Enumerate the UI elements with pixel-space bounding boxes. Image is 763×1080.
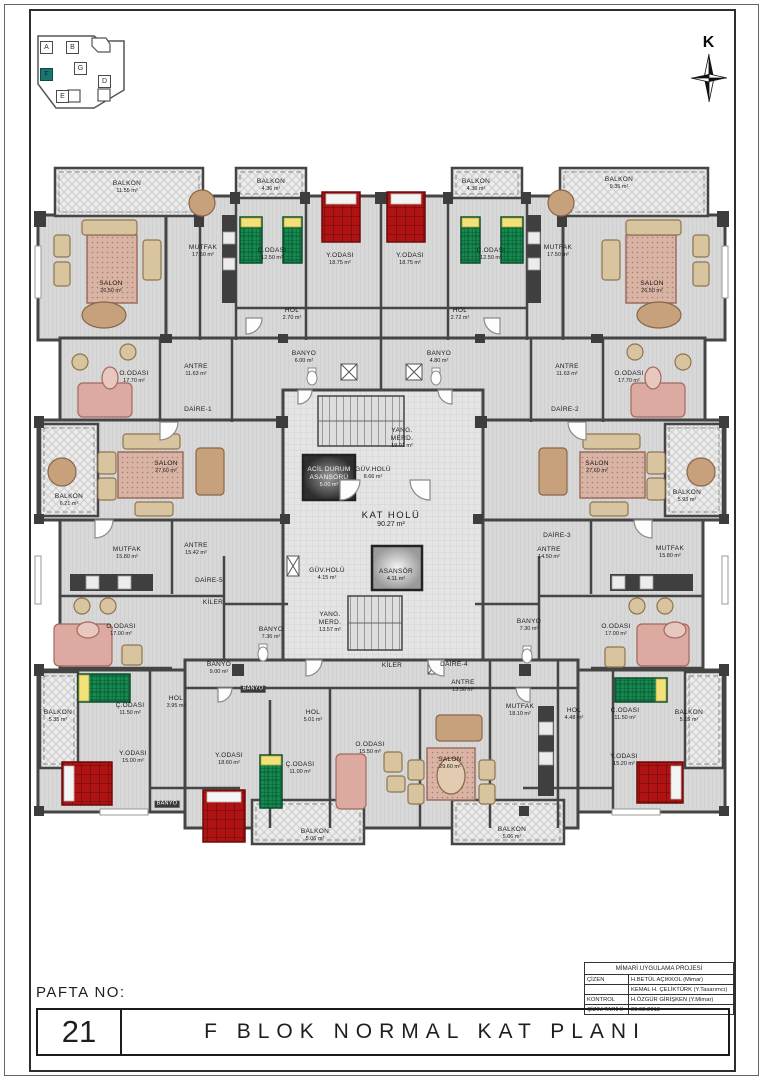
room-label: BANYO6.00 m² — [292, 350, 316, 364]
room-label: ANTRE11.63 m² — [555, 363, 579, 377]
room-label: DAİRE-2 — [551, 406, 579, 414]
room-label: ANTRE14.50 m² — [537, 546, 561, 560]
room-label: BALKON4.36 m² — [462, 178, 490, 192]
room-label: MUTFAK15.80 m² — [656, 545, 684, 559]
titlebar: 21 F BLOK NORMAL KAT PLANI — [36, 1008, 730, 1056]
room-label: BANYO7.36 m² — [259, 626, 283, 640]
room-label: BALKON5.15 m² — [675, 709, 703, 723]
room-label: O.ODASI17.00 m² — [601, 623, 630, 637]
room-label: SALON26.50 m² — [640, 280, 664, 294]
room-label: BALKON5.06 m² — [301, 828, 329, 842]
room-label: DAİRE-3 — [543, 532, 571, 540]
room-label: ACİL DURUM ASANSÖRÜ5.00 m² — [304, 466, 354, 488]
keyplan-block-G: G — [74, 62, 87, 75]
room-label: BALKON4.36 m² — [257, 178, 285, 192]
room-label: YANG. MERD.13.57 m² — [312, 611, 348, 633]
room-label: MUTFAK17.50 m² — [189, 244, 217, 258]
room-label: O.ODASI15.50 m² — [355, 741, 384, 755]
room-label: DAİRE-5 — [195, 577, 223, 585]
sheet-number-label: PAFTA NO: — [36, 984, 126, 1001]
room-label: BANYO — [241, 686, 266, 693]
room-label: MUTFAK15.80 m² — [113, 546, 141, 560]
room-label: HOL2.72 m² — [451, 307, 470, 321]
keyplan-block-A: A — [40, 41, 53, 54]
room-label: DAİRE-1 — [184, 406, 212, 414]
room-label: Ç.ODASI11.50 m² — [611, 707, 640, 721]
room-label: YANG. MERD.19.01 m² — [384, 427, 420, 449]
room-label: ANTRE11.63 m² — [184, 363, 208, 377]
room-label: MUTFAK17.50 m² — [544, 244, 572, 258]
room-label: BALKON6.21 m² — [55, 493, 83, 507]
room-label: ANTRE15.42 m² — [184, 542, 208, 556]
keyplan-block-B: B — [66, 41, 79, 54]
room-label: KİLER — [382, 662, 402, 670]
titleblock-row: KEMAL H. ÇELİKTÜRK (Y.Tasarımcı) — [585, 984, 733, 994]
drawing-sheet: BALKON11.55 m²BALKON4.36 m²BALKON4.36 m²… — [0, 0, 763, 1080]
room-label: MUTFAK18.10 m² — [506, 703, 534, 717]
room-label: BALKON5.06 m² — [498, 826, 526, 840]
north-label: K — [688, 34, 730, 52]
north-arrow: K — [688, 34, 730, 109]
room-label: O.ODASI17.70 m² — [614, 370, 643, 384]
room-label: BALKON5.35 m² — [44, 709, 72, 723]
room-label: SALON29.60 m² — [438, 756, 462, 770]
room-label: Y.ODASI18.60 m² — [215, 752, 243, 766]
room-label: O.ODASI17.00 m² — [106, 623, 135, 637]
room-label: Ç.ODASI12.50 m² — [477, 247, 506, 261]
plan-labels: BALKON11.55 m²BALKON4.36 m²BALKON4.36 m²… — [0, 0, 763, 1080]
room-label: Ç.ODASI12.50 m² — [258, 247, 287, 261]
room-label: HOL5.01 m² — [304, 709, 323, 723]
titleblock-row: KONTROLH.ÖZGÜR GİRİŞKEN (Y.Mimar) — [585, 994, 733, 1004]
titleblock-header: MİMARİ UYGULAMA PROJESİ — [585, 963, 733, 974]
room-label: HOL2.70 m² — [283, 307, 302, 321]
keyplan-block-E: E — [56, 90, 69, 103]
room-label: BALKON11.55 m² — [113, 180, 141, 194]
keyplan-block-D: D — [98, 75, 111, 88]
room-label: Y.ODASI15.00 m² — [119, 750, 147, 764]
room-label: SALON27.60 m² — [154, 460, 178, 474]
room-label: Y.ODASI18.75 m² — [326, 252, 354, 266]
room-label: GÜV.HOLÜ8.66 m² — [355, 466, 391, 480]
room-label: Ç.ODASI11.00 m² — [286, 761, 315, 775]
room-label: BANYO7.30 m² — [517, 618, 541, 632]
compass-star-icon — [688, 52, 730, 104]
room-label: HOL3.95 m² — [167, 695, 186, 709]
room-label: Ç.ODASI11.50 m² — [116, 702, 145, 716]
keyplan: ABFGDE — [30, 32, 132, 114]
room-label: BALKON9.35 m² — [605, 176, 633, 190]
room-label: DAİRE-4 — [440, 661, 468, 669]
room-label: BANYO9.00 m² — [207, 661, 231, 675]
room-label: KAT HOLÜ90.27 m² — [362, 510, 421, 530]
room-label: KİLER — [203, 599, 223, 607]
room-label: ASANSÖR4.11 m² — [379, 568, 413, 582]
sheet-title: F BLOK NORMAL KAT PLANI — [122, 1008, 730, 1056]
room-label: Y.ODASI15.20 m² — [610, 753, 638, 767]
keyplan-block-F: F — [40, 68, 53, 81]
room-label: BALKON5.93 m² — [673, 489, 701, 503]
room-label: GÜV.HOLÜ4.15 m² — [309, 567, 345, 581]
room-label: Y.ODASI18.75 m² — [396, 252, 424, 266]
room-label: BANYO — [155, 801, 180, 808]
room-label: SALON27.60 m² — [585, 460, 609, 474]
room-label: SALON26.50 m² — [99, 280, 123, 294]
sheet-number: 21 — [36, 1008, 122, 1056]
room-label: HOL4.48 m² — [565, 707, 584, 721]
room-label: O.ODASI17.70 m² — [119, 370, 148, 384]
room-label: ANTRE13.30 m² — [451, 679, 475, 693]
room-label: BANYO4.80 m² — [427, 350, 451, 364]
titleblock-row: ÇİZENH.BETÜL AÇIKKOL (Mimar) — [585, 974, 733, 984]
